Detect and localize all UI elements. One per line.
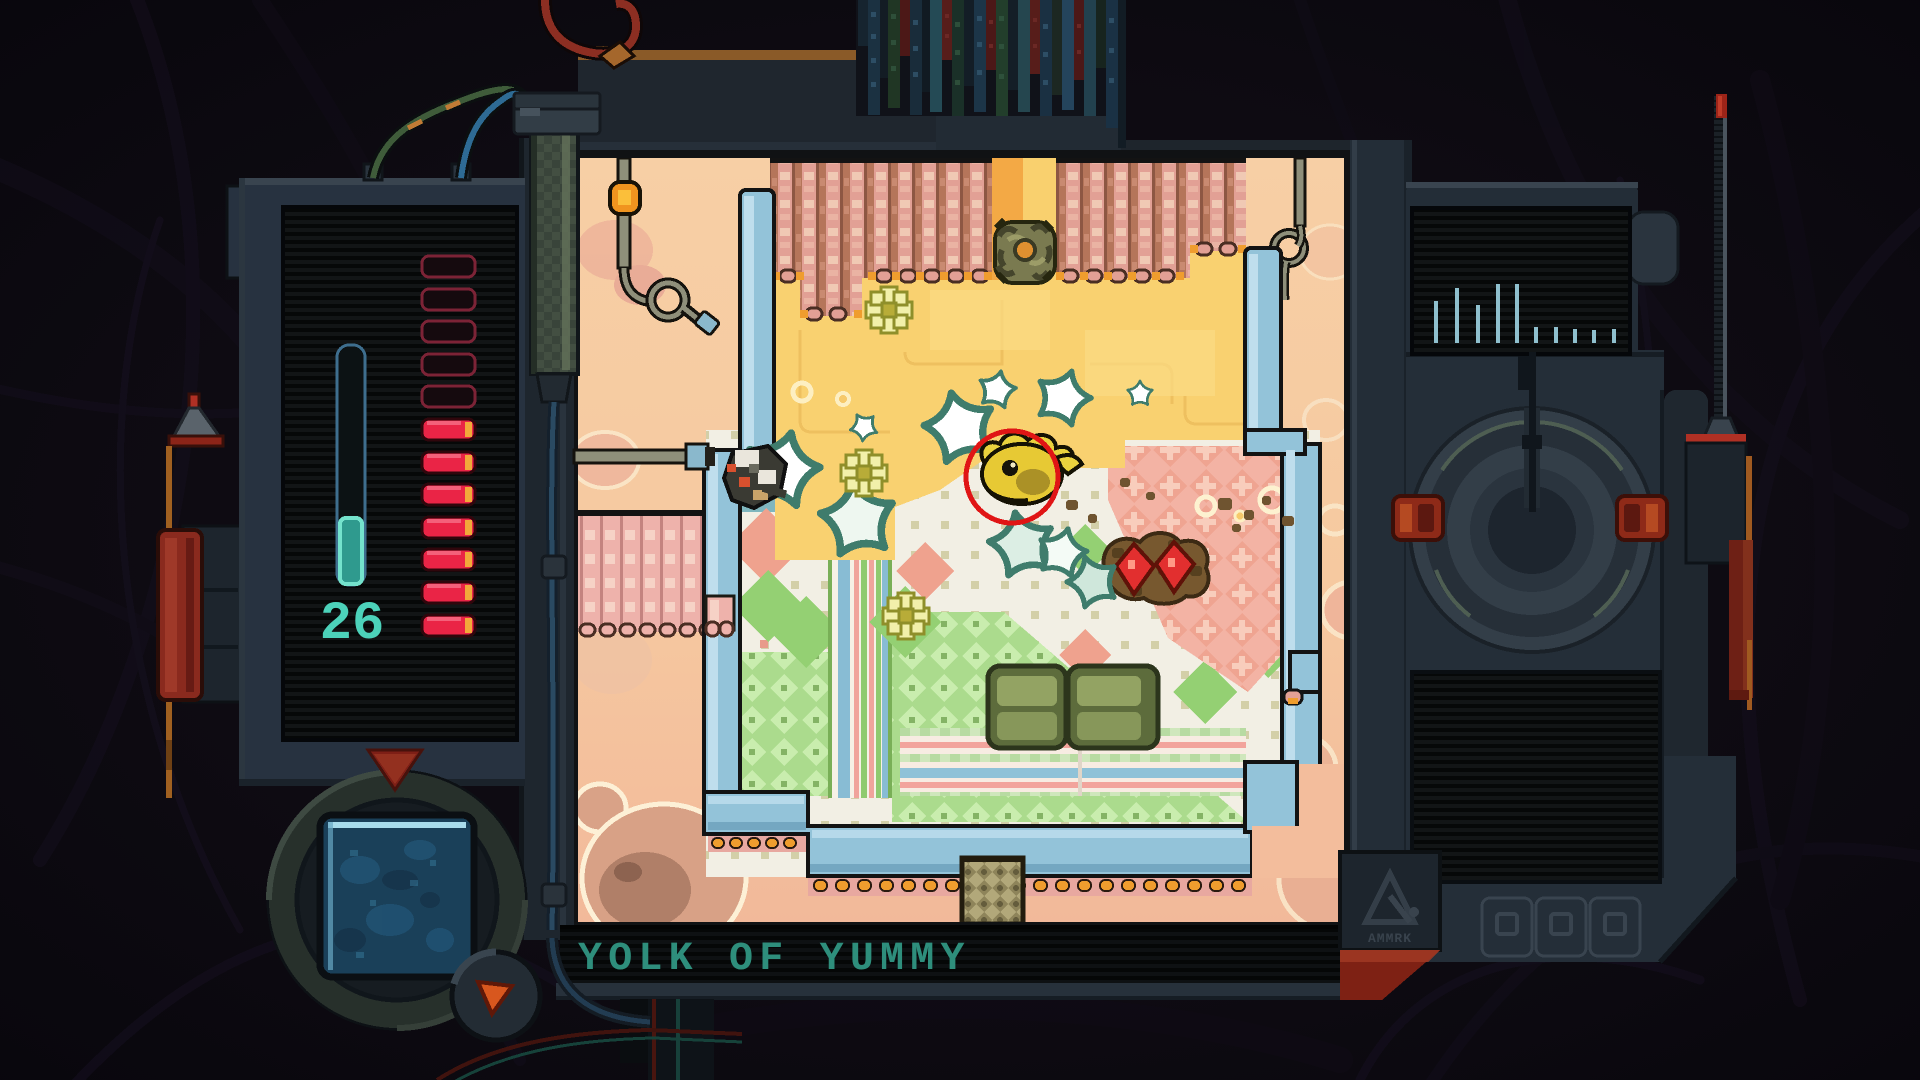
svg-text:YOLK OF YUMMY: YOLK OF YUMMY [578,937,971,982]
svg-text:26: 26 [320,594,385,655]
svg-text:AMMRK: AMMRK [1368,931,1412,946]
